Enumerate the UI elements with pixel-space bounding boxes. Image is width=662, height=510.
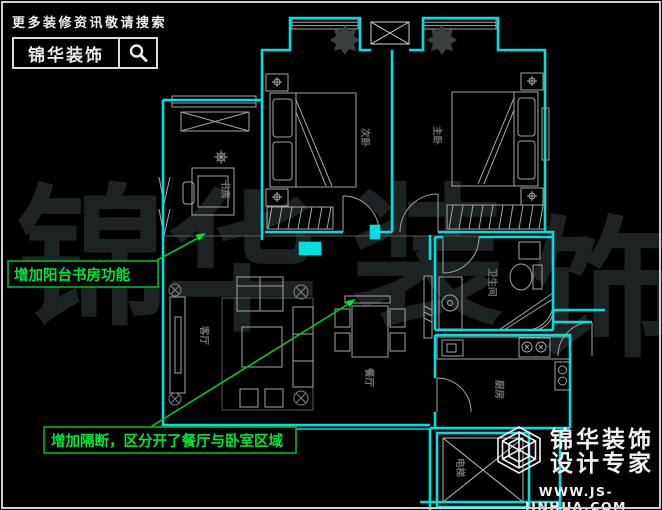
bed-icon-master bbox=[452, 92, 538, 186]
wall-pillar bbox=[371, 226, 379, 238]
wireframe-cube-icon bbox=[494, 424, 544, 480]
window-band-study-top bbox=[172, 96, 256, 107]
badge-tagline: 更多装修资讯敬请搜索 bbox=[12, 12, 167, 31]
brand-search-badge: 更多装修资讯敬请搜索 锦华装饰 bbox=[12, 12, 167, 69]
door-arc-kitchen bbox=[437, 378, 471, 412]
room-label-master: 主卧 bbox=[431, 126, 443, 146]
room-label-bedroom2: 次卧 bbox=[359, 128, 371, 148]
room-label-bathroom: 卫生间 bbox=[486, 268, 498, 297]
sink-icon bbox=[555, 362, 570, 390]
window-band-bay1 bbox=[292, 19, 358, 29]
room-label-kitchen: 厨房 bbox=[493, 380, 505, 399]
tv-cabinet-icon bbox=[170, 297, 185, 393]
plant-icon bbox=[169, 284, 308, 405]
search-icon bbox=[120, 39, 156, 67]
room-label-elevator: 电梯 bbox=[454, 458, 466, 478]
shaft-box-icon bbox=[371, 22, 409, 44]
footer-subtitle: 设计专家 bbox=[550, 452, 654, 476]
nightstand-icon bbox=[521, 188, 543, 205]
room-label-study: 书房 bbox=[219, 180, 231, 199]
plant-icon-top-right bbox=[427, 25, 457, 55]
annotation-partition-label: 增加隔断，区分开了餐厅与卧室区域 bbox=[51, 432, 283, 450]
window-casement-left bbox=[159, 177, 170, 236]
annotation-partition: 增加隔断，区分开了餐厅与卧室区域 bbox=[44, 299, 356, 453]
nightstand-icon bbox=[266, 189, 288, 206]
bed-icon-bedroom1 bbox=[270, 93, 356, 187]
window-band-bay2 bbox=[423, 19, 496, 29]
annotations-layer: 增加阳台书房功能 增加隔断，区分开了餐厅与卧室区域 bbox=[8, 233, 356, 453]
door-arc-master bbox=[400, 194, 438, 232]
badge-box: 锦华装饰 bbox=[12, 37, 158, 69]
room-label-living: 客厅 bbox=[198, 325, 210, 346]
shower-icon bbox=[499, 293, 553, 330]
nightstand-icon bbox=[266, 74, 288, 91]
floorplan-image: 锦 华 装 饰 bbox=[0, 0, 662, 510]
door-arc-entry bbox=[558, 322, 592, 356]
wall-top-bay2-right bbox=[409, 18, 545, 232]
dining-table-icon bbox=[335, 306, 405, 357]
room-label-dining: 餐厅 bbox=[363, 367, 375, 388]
footer-logo: 锦华装饰 设计专家 WWW.JS-JINHUA.COM bbox=[494, 424, 658, 510]
nightstand-icon bbox=[521, 73, 543, 90]
hall-screen-icon bbox=[424, 276, 432, 338]
annotation-balcony-label: 增加阳台书房功能 bbox=[14, 266, 130, 284]
toilet-icon bbox=[510, 264, 542, 290]
footer-website: WWW.JS-JINHUA.COM bbox=[494, 484, 658, 510]
stove-icon bbox=[519, 338, 550, 357]
sofa-icon bbox=[237, 277, 313, 407]
wardrobe-icon-bedroom1 bbox=[267, 207, 333, 229]
coffee-table-icon bbox=[242, 327, 282, 367]
plant-icon-top-left bbox=[330, 25, 360, 55]
wardrobe-icon-master bbox=[447, 205, 545, 229]
wall-pillar bbox=[300, 243, 320, 254]
wall-entry bbox=[553, 310, 605, 322]
bath-cabinet-icon bbox=[519, 242, 540, 259]
badge-brand-label: 锦华装饰 bbox=[14, 39, 120, 67]
door-arc-bathroom bbox=[443, 237, 479, 273]
annotation-balcony: 增加阳台书房功能 bbox=[8, 233, 206, 287]
study-cabinet-icon bbox=[181, 112, 249, 131]
footer-brand: 锦华装饰 bbox=[550, 428, 654, 452]
compass-ornament-icon bbox=[214, 150, 228, 164]
washbasin-icon bbox=[439, 277, 462, 329]
